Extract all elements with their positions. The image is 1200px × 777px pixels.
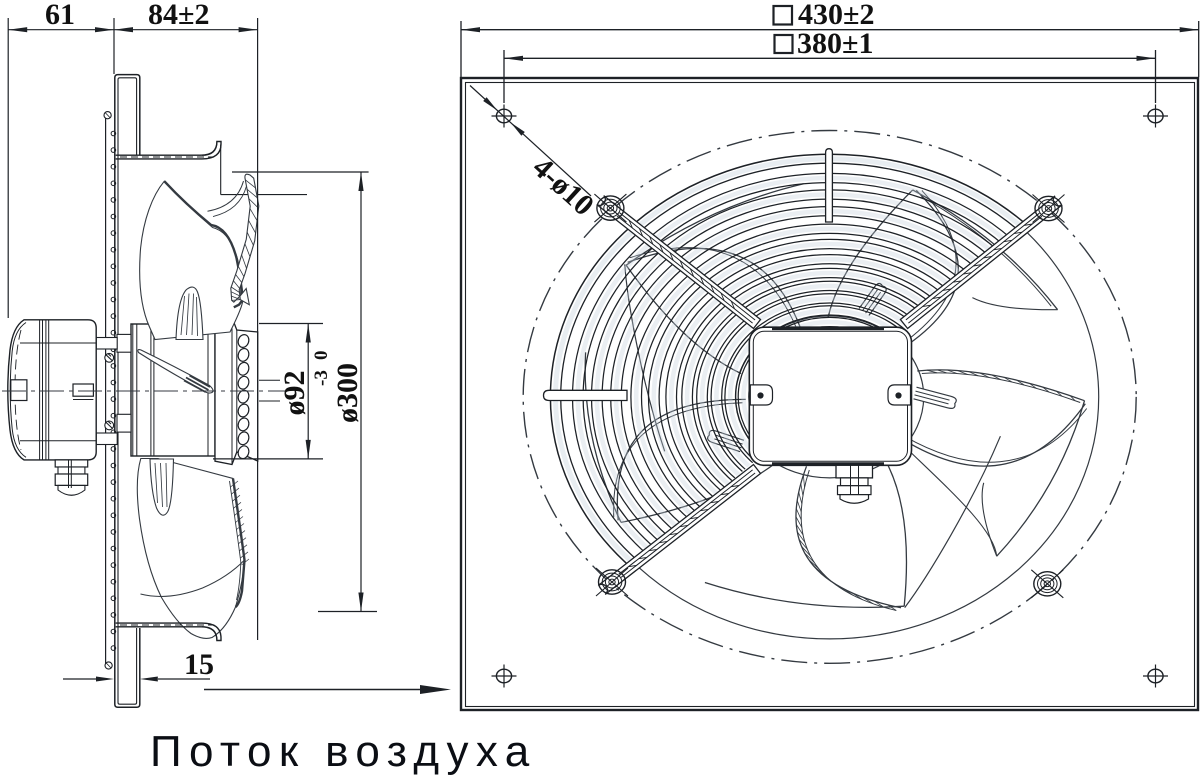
- svg-text:ø300: ø300: [331, 363, 364, 423]
- svg-text:-3: -3: [311, 370, 332, 386]
- svg-text:61: 61: [45, 0, 75, 31]
- svg-text:380±1: 380±1: [797, 27, 873, 60]
- svg-text:84±2: 84±2: [148, 0, 209, 31]
- svg-text:ø92: ø92: [278, 371, 311, 416]
- svg-text:Поток воздуха: Поток воздуха: [150, 727, 537, 776]
- svg-text:0: 0: [311, 351, 332, 361]
- svg-text:15: 15: [184, 648, 214, 681]
